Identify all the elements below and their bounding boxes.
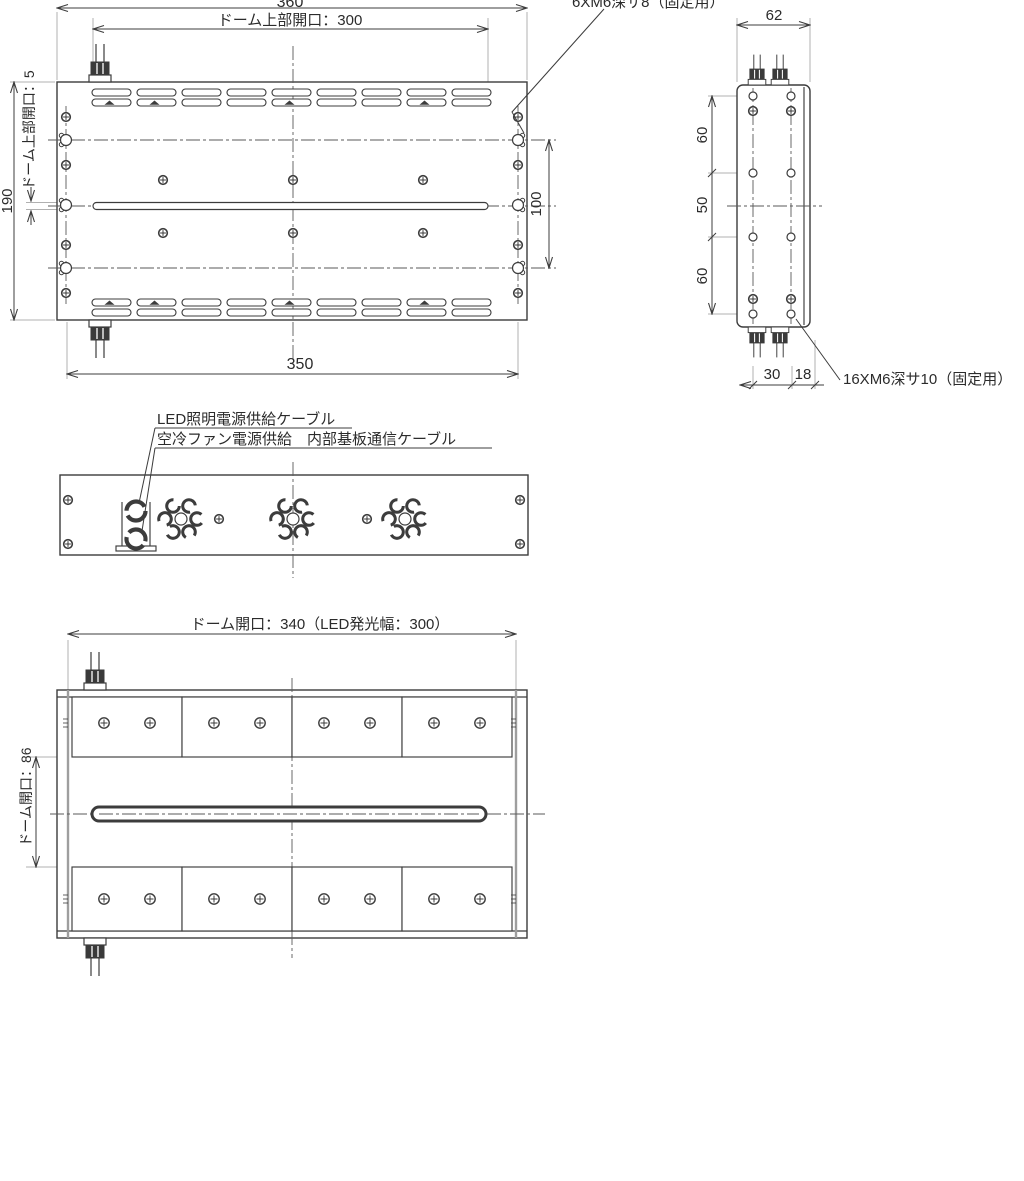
cad-drawing-page: 360 ドーム上部開口：300 190 ドーム上部開口：5 100 350: [0, 0, 1024, 1181]
label-led-power-cable: LED照明電源供給ケーブル: [157, 410, 335, 428]
technical-drawing-canvas: 360 ドーム上部開口：300 190 ドーム上部開口：5 100 350: [0, 0, 1024, 1181]
dim-dome-top-opening-5: ドーム上部開口：5: [21, 70, 37, 190]
side-view: 62 60 50 60 30 18 16XM6深サ10（固定用） 6XM6深サ8…: [512, 0, 1012, 389]
label-fix16: 16XM6深サ10（固定用）: [843, 371, 1012, 388]
led-panels-bottom: [72, 867, 512, 931]
dim-dome-opening-86: ドーム開口：86: [18, 747, 34, 846]
dim-60b: 60: [694, 268, 711, 285]
dim-190: 190: [0, 188, 16, 213]
dim-30: 30: [764, 366, 781, 383]
dim-50: 50: [694, 197, 711, 214]
dim-100: 100: [528, 191, 545, 216]
dome-top-opening-slot: [93, 203, 488, 210]
dim-350: 350: [287, 356, 314, 373]
dim-62: 62: [766, 7, 783, 24]
front-view: LED照明電源供給ケーブル 空冷ファン電源供給 内部基板通信ケーブル: [60, 410, 528, 578]
dim-dome-opening-340: ドーム開口：340（LED発光幅：300）: [191, 616, 450, 633]
dim-dome-top-opening-300: ドーム上部開口：300: [218, 12, 363, 29]
label-fix6: 6XM6深サ8（固定用）: [572, 0, 725, 11]
dim-360: 360: [277, 0, 304, 11]
dim-60a: 60: [694, 127, 711, 144]
led-power-connector: [127, 502, 146, 521]
top-view-body: [57, 82, 527, 320]
top-view: 360 ドーム上部開口：300 190 ドーム上部開口：5 100 350: [0, 0, 556, 379]
led-panels-top: [72, 697, 512, 757]
label-fan-power-cable: 空冷ファン電源供給 内部基板通信ケーブル: [157, 430, 456, 448]
dim-18: 18: [795, 366, 812, 383]
bottom-view: ドーム開口：340（LED発光幅：300） ドーム開口：86: [18, 616, 545, 976]
